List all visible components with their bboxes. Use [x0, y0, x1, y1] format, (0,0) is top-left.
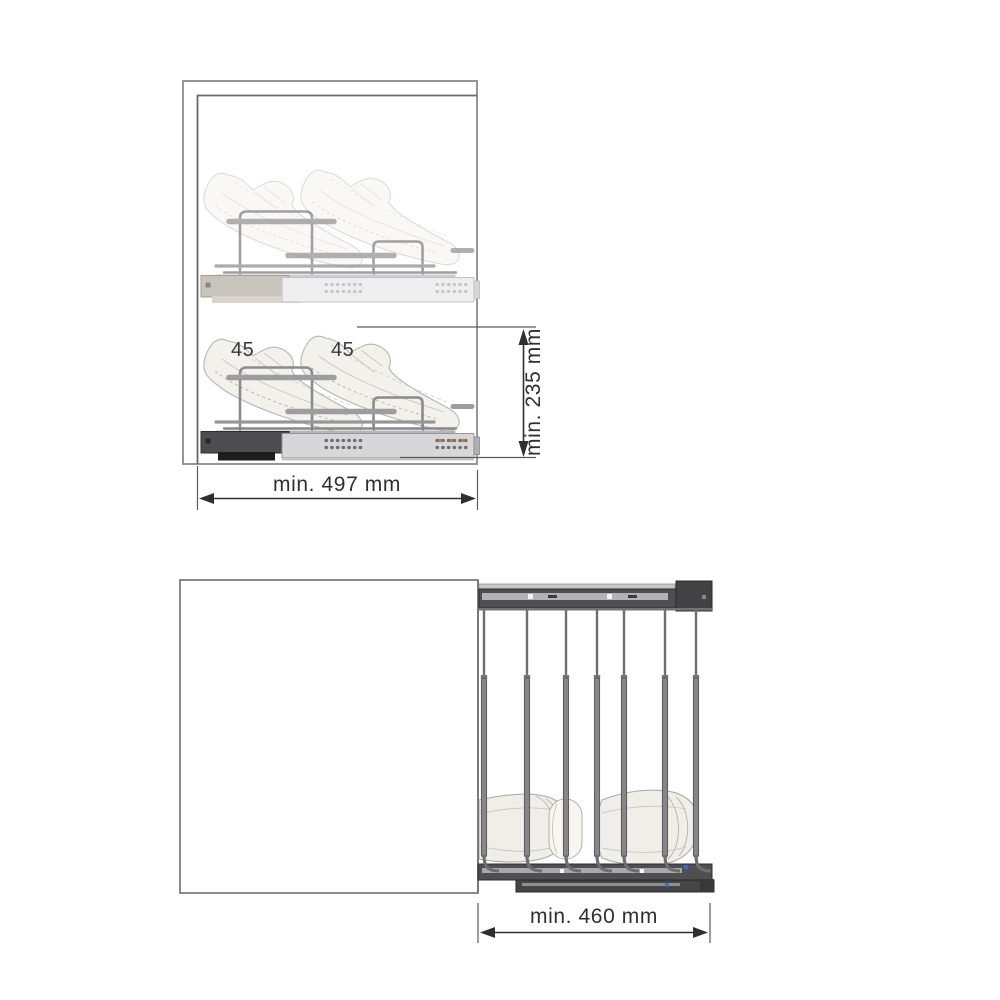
bottom-rail: [478, 864, 714, 892]
lower-shelf-unit: 45 45: [201, 336, 480, 460]
width-dimension-label: min. 497 mm: [273, 473, 401, 496]
top-view-panel: min. 460 mm: [180, 580, 714, 943]
height-dimension-label: min. 235 mm: [522, 328, 545, 456]
drawer-slide-upper: [201, 275, 480, 304]
shoe-rack-drawing: 45 45 min. 497 mm min. 235 mm: [0, 0, 1000, 1000]
shoe-top-right: [598, 790, 699, 866]
shoe-size-label-right: 45: [331, 339, 354, 361]
divider-rod: [693, 610, 711, 871]
depth-dimension: min. 460 mm: [478, 903, 710, 943]
top-rail: [479, 581, 712, 611]
cabinet-top-view: [180, 580, 478, 893]
technical-drawing-page: 45 45 min. 497 mm min. 235 mm: [0, 0, 1000, 1000]
drawer-slide-lower: [201, 431, 480, 461]
depth-dimension-label: min. 460 mm: [530, 905, 658, 928]
width-dimension: min. 497 mm: [198, 466, 478, 510]
upper-shelf-unit: [201, 170, 480, 303]
side-view-panel: 45 45 min. 497 mm min. 235 mm: [183, 81, 545, 510]
shoe-size-label-left: 45: [231, 339, 254, 361]
